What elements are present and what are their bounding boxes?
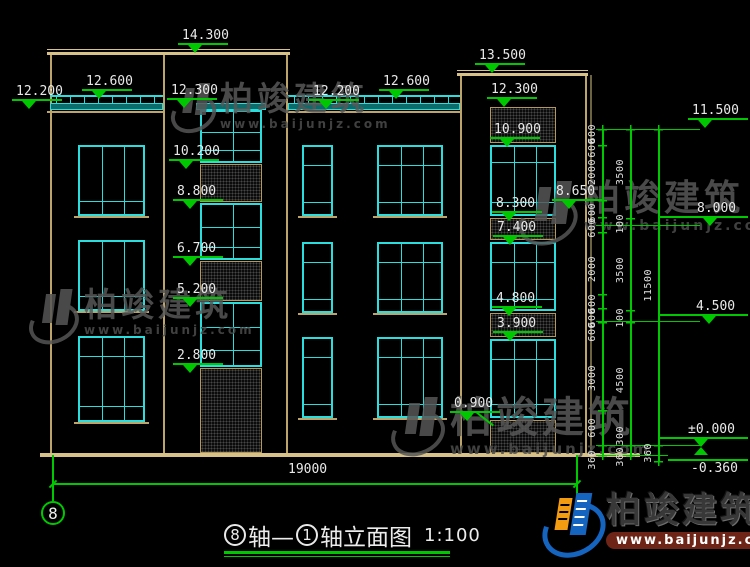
window-mullion-horizontal <box>304 262 331 263</box>
elevation-label: 14.300 <box>182 29 229 42</box>
marker-underline <box>173 256 223 258</box>
dim-tick <box>626 451 635 460</box>
window-mullion-horizontal <box>80 406 143 407</box>
window-mullion-horizontal <box>202 227 260 228</box>
elevation-label: 4.500 <box>696 300 735 313</box>
dim-tick <box>626 318 635 327</box>
marker-underline <box>492 211 542 213</box>
watermark-url: www.baijunjz.com <box>220 117 391 131</box>
marker-underline <box>475 63 525 65</box>
marker-underline <box>173 199 223 201</box>
title-text-axis: 轴— <box>248 518 294 552</box>
dim-chain-label: 600 <box>587 218 598 238</box>
dim-chain-label: 3500 <box>615 159 626 185</box>
marker-underline <box>173 363 223 365</box>
hatch-panel <box>200 368 262 453</box>
axis-leader-line <box>52 455 54 501</box>
marker-triangle <box>500 139 514 147</box>
brand-logo-icon <box>540 488 604 558</box>
window-mullion-horizontal <box>492 262 554 263</box>
window <box>78 336 145 422</box>
title-axis-bubble-1: 1 <box>296 524 318 546</box>
marker-underline <box>487 97 537 99</box>
marker-triangle <box>22 101 36 109</box>
overall-dim-line <box>53 483 577 485</box>
window-mullion-vertical <box>124 338 125 420</box>
sill-line <box>373 216 447 218</box>
dim-connector <box>596 129 700 130</box>
marker-triangle <box>183 365 197 373</box>
dim-chain-label: 600 <box>587 322 598 342</box>
dim-chain-label: 2000 <box>587 159 598 185</box>
marker-triangle <box>694 439 708 447</box>
marker-triangle <box>502 308 516 316</box>
watermark-text: 柏竣建筑 <box>220 82 391 117</box>
sill-line <box>74 216 149 218</box>
window <box>78 145 145 216</box>
axis-bubble-8: 8 <box>41 501 65 525</box>
watermark: 柏竣建筑www.baijunjz.com <box>390 396 651 460</box>
marker-triangle <box>389 91 403 99</box>
marker-underline <box>12 99 62 101</box>
sill-line <box>47 111 164 113</box>
elevation-label: 13.500 <box>479 49 526 62</box>
sill-line <box>298 418 337 420</box>
marker-triangle <box>179 161 193 169</box>
drawing-title: 8轴—1轴立面图1:100 <box>222 518 481 552</box>
sill-line <box>74 422 149 424</box>
elevation-label: 4.800 <box>496 292 535 305</box>
overall-dim-label: 19000 <box>288 462 327 477</box>
watermark-text: 柏竣建筑 <box>84 288 255 323</box>
window <box>377 242 443 313</box>
marker-triangle <box>702 316 716 324</box>
parapet-or-ground-line <box>457 70 588 71</box>
window-mullion-horizontal <box>304 165 331 166</box>
dim-tick <box>626 441 635 450</box>
marker-underline <box>379 89 429 91</box>
marker-underline <box>552 199 602 201</box>
dim-chain-label: 2000 <box>587 256 598 282</box>
dim-tick <box>598 213 607 222</box>
window-mullion-horizontal <box>304 299 331 300</box>
elevation-label: 10.200 <box>173 145 220 158</box>
marker-triangle <box>503 237 517 245</box>
dim-tick <box>598 125 607 134</box>
marker-triangle <box>183 201 197 209</box>
watermark-text-column: 柏竣建筑www.baijunjz.com <box>220 82 391 131</box>
title-underline-thin <box>224 556 450 557</box>
marker-underline <box>688 118 748 120</box>
window-mullion-vertical <box>423 147 424 214</box>
dim-chain-line <box>658 129 660 461</box>
elevation-label: 8.000 <box>697 202 736 215</box>
elevation-label: 12.200 <box>16 85 63 98</box>
window-mullion-horizontal <box>304 357 331 358</box>
marker-underline <box>493 235 543 237</box>
elevation-label: 12.600 <box>86 75 133 88</box>
dim-tick <box>598 141 607 150</box>
marker-triangle <box>460 413 474 421</box>
dim-chain-label: 100 <box>615 308 626 328</box>
window-mullion-vertical <box>423 244 424 311</box>
marker-underline <box>490 137 540 139</box>
dim-tick <box>598 196 607 205</box>
elevation-drawing-canvas: 柏竣建筑www.baijunjz.com柏竣建筑www.baijunjz.com… <box>0 0 750 567</box>
window-mullion-horizontal <box>304 404 331 405</box>
marker-triangle <box>698 120 712 128</box>
dim-chain-label: 360 <box>643 443 654 463</box>
elevation-label: 5.200 <box>177 283 216 296</box>
marker-underline <box>493 331 543 333</box>
dim-tick <box>626 306 635 315</box>
title-axis-bubble-8: 8 <box>224 524 246 546</box>
dim-tick <box>598 304 607 313</box>
window-mullion-horizontal <box>379 299 441 300</box>
marker-underline <box>450 411 500 413</box>
marker-underline <box>173 297 223 299</box>
dim-chain-label: 3500 <box>615 257 626 283</box>
marker-underline <box>178 43 228 45</box>
title-scale: 1:100 <box>424 525 481 546</box>
window-mullion-horizontal <box>304 202 331 203</box>
window-mullion-vertical <box>124 147 125 214</box>
dim-chain-label: 11500 <box>643 269 654 302</box>
window-mullion-vertical <box>102 147 103 214</box>
railing-top-rail <box>50 95 163 97</box>
window-mullion-horizontal <box>492 162 554 163</box>
marker-underline <box>668 459 748 461</box>
elevation-label: ±0.000 <box>688 423 735 436</box>
sill-line <box>373 313 447 315</box>
title-text-elevation: 轴立面图 <box>320 518 412 552</box>
elevation-label: 12.300 <box>171 84 218 97</box>
elevation-label: 2.800 <box>177 349 216 362</box>
elevation-label: 10.900 <box>494 123 541 136</box>
dim-chain-label: 300 <box>615 426 626 446</box>
elevation-label: 8.650 <box>556 185 595 198</box>
elevation-label: -0.360 <box>691 462 738 475</box>
dim-tick <box>598 441 607 450</box>
parapet-or-ground-line <box>47 52 290 55</box>
elevation-label: 6.700 <box>177 242 216 255</box>
dim-tick <box>598 290 607 299</box>
parapet-or-ground-line <box>457 73 588 76</box>
dim-tick <box>654 125 663 134</box>
elevation-label: 8.300 <box>496 197 535 210</box>
window <box>302 337 333 418</box>
dim-tick <box>654 441 663 450</box>
dim-tick <box>626 214 635 223</box>
marker-triangle <box>319 101 333 109</box>
marker-triangle <box>497 99 511 107</box>
window-mullion-vertical <box>102 338 103 420</box>
marker-triangle-up <box>694 447 708 455</box>
railing-band <box>50 103 163 110</box>
window-mullion-horizontal <box>379 202 441 203</box>
window-mullion-horizontal <box>80 356 143 357</box>
window-mullion-vertical <box>401 244 402 311</box>
dim-tick <box>626 125 635 134</box>
title-underline <box>224 551 450 554</box>
elevation-label: 8.800 <box>177 185 216 198</box>
dim-chain-label: 360 <box>615 447 626 467</box>
marker-triangle <box>562 201 576 209</box>
marker-triangle <box>183 258 197 266</box>
window-mullion-horizontal <box>379 262 441 263</box>
dim-chain-label: 600 <box>587 418 598 438</box>
watermark-url: www.baijunjz.com <box>84 323 255 337</box>
watermark-text-column: 柏竣建筑www.baijunjz.com <box>84 288 255 337</box>
window <box>302 145 333 216</box>
window <box>302 242 333 313</box>
dim-chain-label: 360 <box>587 450 598 470</box>
dim-chain-label: 4500 <box>615 367 626 393</box>
watermark-logo-icon <box>28 288 80 348</box>
parapet-or-ground-line <box>47 49 290 50</box>
window-mullion-vertical <box>233 205 234 258</box>
marker-underline <box>169 159 219 161</box>
window-mullion-horizontal <box>80 201 143 202</box>
sill-line <box>298 216 337 218</box>
sill-line <box>298 313 337 315</box>
watermark-logo-icon <box>390 396 446 460</box>
marker-triangle <box>183 299 197 307</box>
elevation-label: 12.600 <box>383 75 430 88</box>
marker-triangle <box>503 333 517 341</box>
marker-triangle <box>92 91 106 99</box>
elevation-label: 7.400 <box>497 221 536 234</box>
elevation-label: 12.200 <box>313 85 360 98</box>
elevation-label: 12.300 <box>491 83 538 96</box>
window <box>377 145 443 216</box>
window-mullion-horizontal <box>492 359 554 360</box>
dim-connector <box>596 225 700 226</box>
marker-underline <box>309 99 359 101</box>
dim-connector <box>596 321 700 322</box>
dim-tick <box>598 318 607 327</box>
dim-tick <box>598 451 607 460</box>
marker-triangle <box>188 45 202 53</box>
brand-url: www.baijunjz.com <box>606 532 750 549</box>
elevation-label: 11.500 <box>692 104 739 117</box>
dim-chain-label: 3000 <box>587 365 598 391</box>
elevation-label: 3.900 <box>497 317 536 330</box>
marker-triangle <box>485 65 499 73</box>
dim-tick <box>598 406 607 415</box>
brand-logo: 柏竣建筑 www.baijunjz.com <box>540 488 750 558</box>
elevation-label: 0.900 <box>454 397 493 410</box>
marker-underline <box>492 306 542 308</box>
marker-triangle <box>177 100 191 108</box>
dim-chain-line <box>630 129 632 455</box>
window-mullion-vertical <box>401 147 402 214</box>
brand-name: 柏竣建筑 <box>606 494 750 529</box>
window-mullion-horizontal <box>379 165 441 166</box>
dim-tick <box>598 228 607 237</box>
marker-underline <box>82 89 132 91</box>
dim-chain-label: 600 <box>587 138 598 158</box>
dim-chain-label: 100 <box>615 214 626 234</box>
marker-triangle <box>703 218 717 226</box>
dim-tick <box>654 457 663 466</box>
marker-underline <box>167 98 217 100</box>
window-mullion-horizontal <box>379 357 441 358</box>
